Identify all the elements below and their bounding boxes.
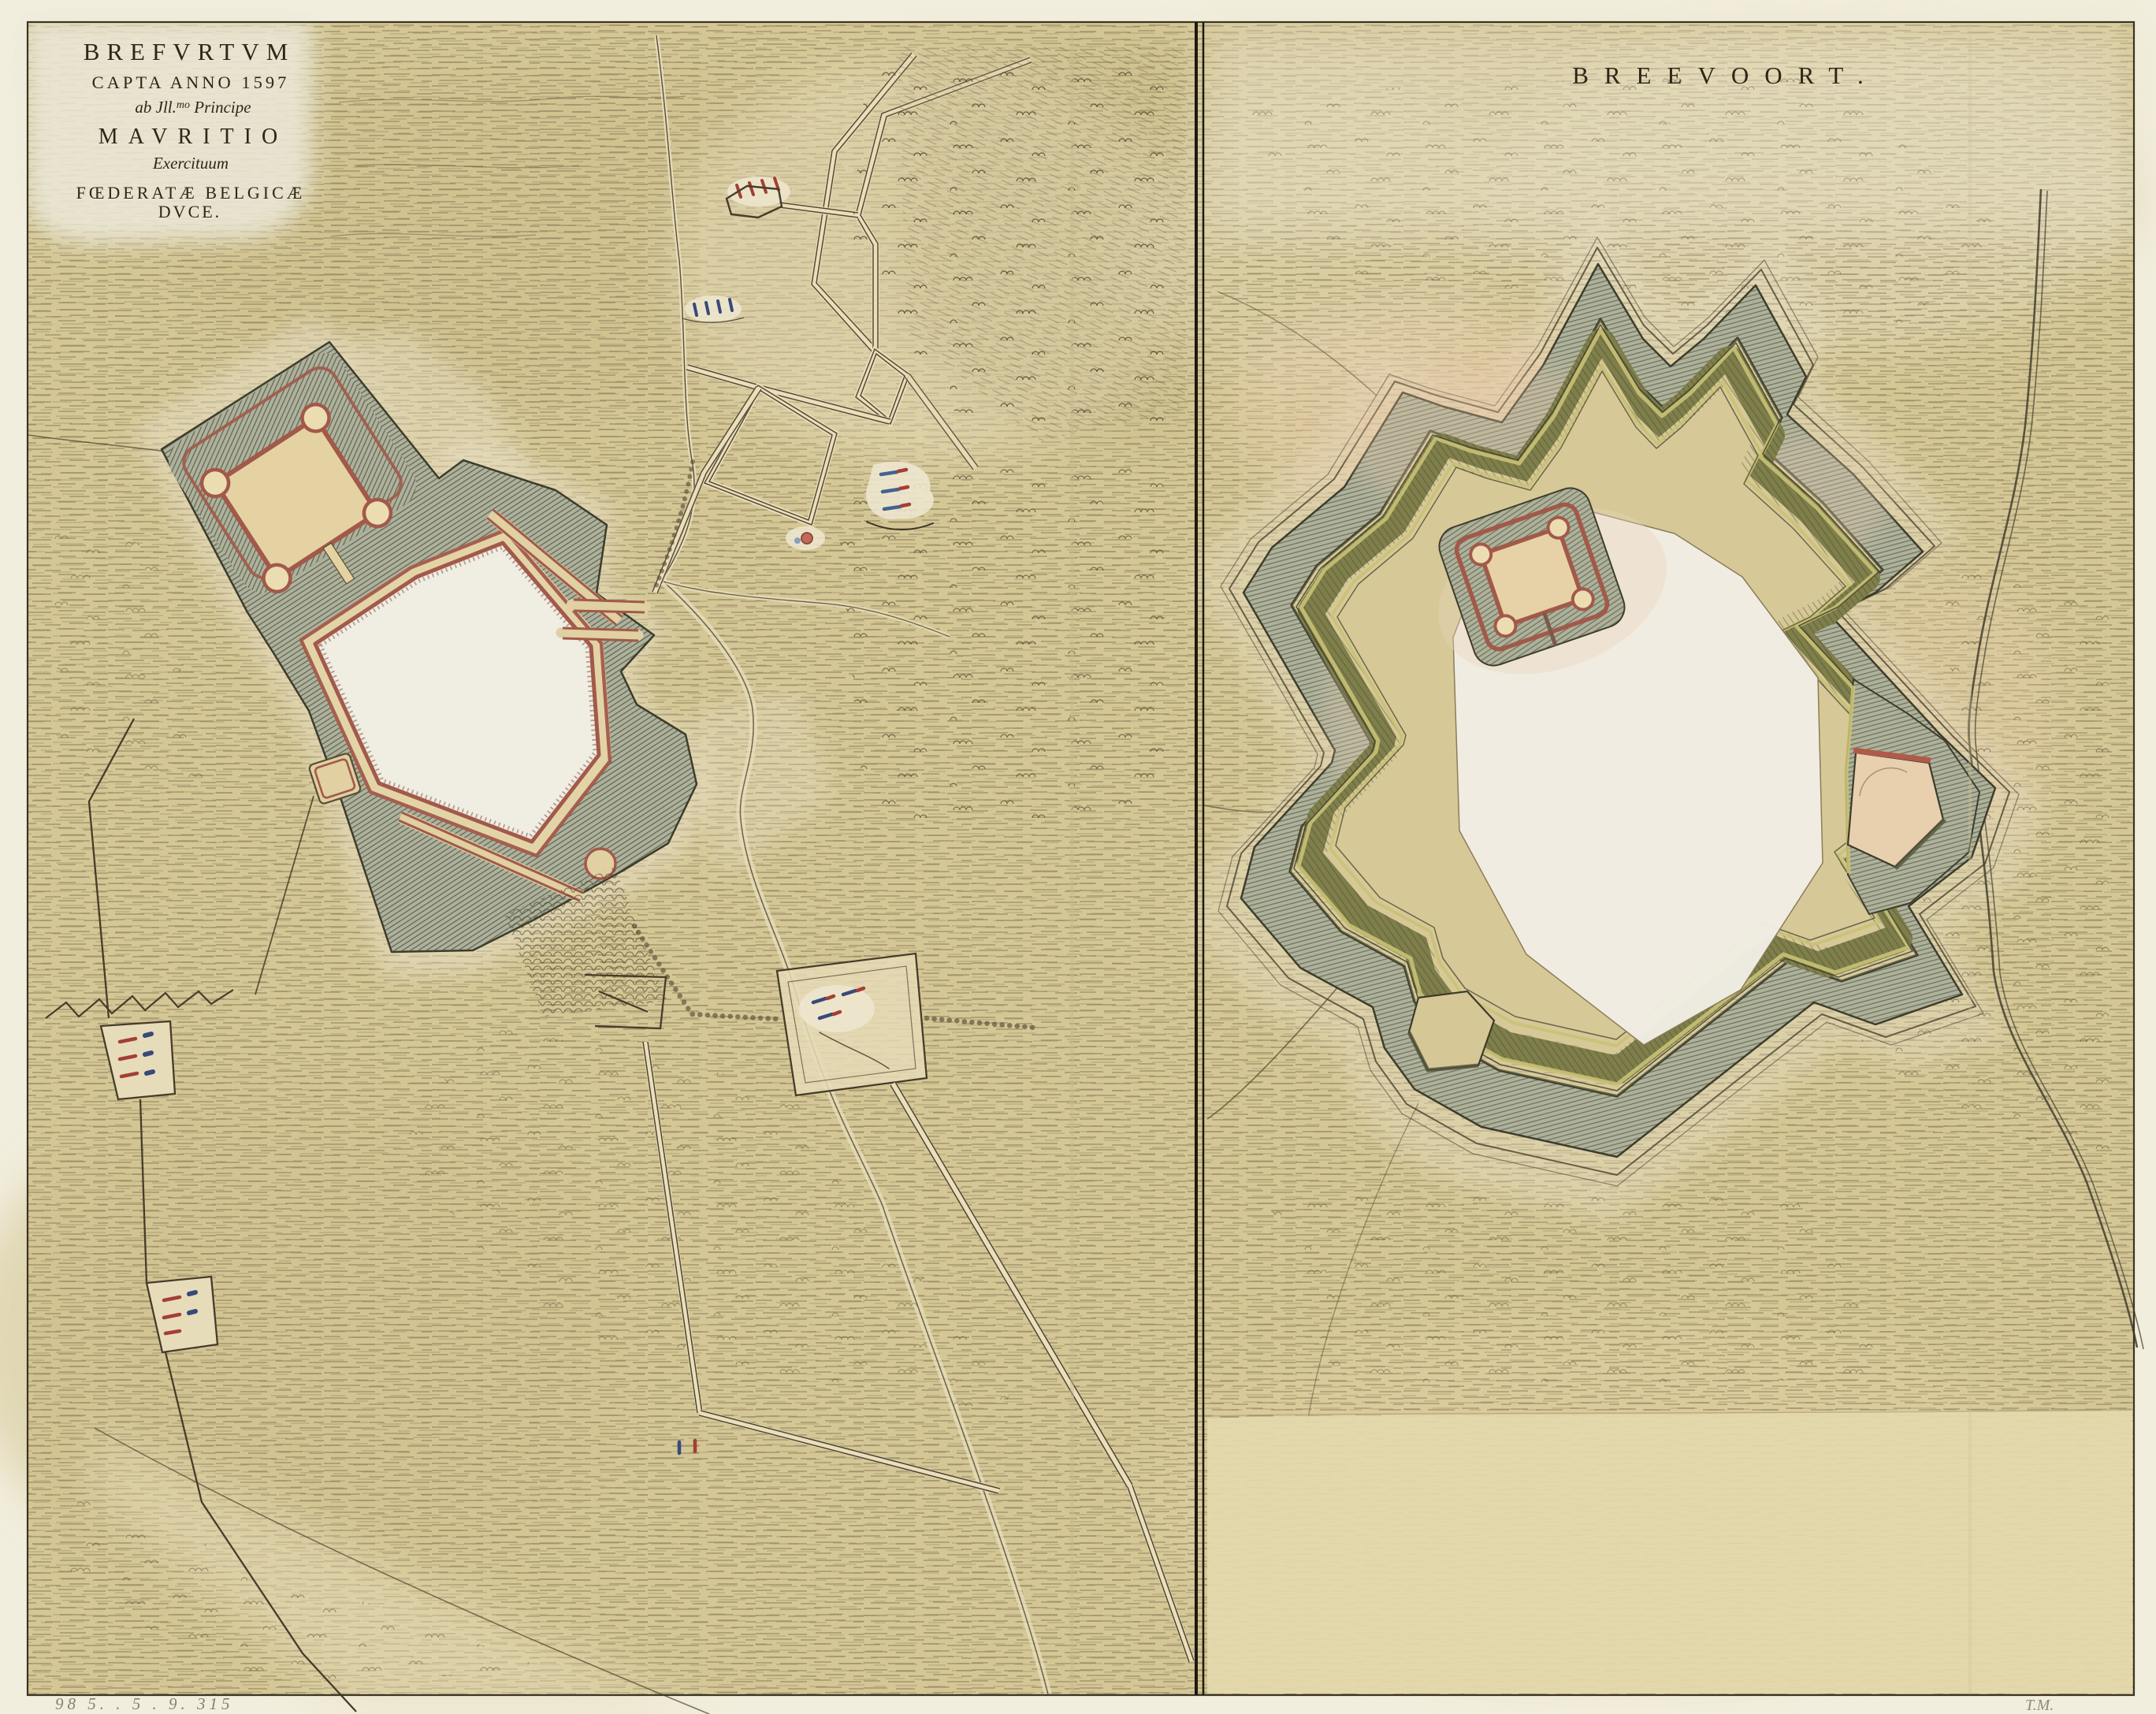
svg-text:ab Jll.mo Principe: ab Jll.mo Principe bbox=[135, 98, 251, 117]
svg-text:BREFVRTVM: BREFVRTVM bbox=[84, 38, 296, 65]
svg-text:CAPTA ANNO 1597: CAPTA ANNO 1597 bbox=[92, 73, 290, 92]
svg-text:DVCE.: DVCE. bbox=[158, 202, 221, 221]
svg-text:Exercituum: Exercituum bbox=[152, 154, 229, 173]
svg-text:98 5. . 5 . 9. 315: 98 5. . 5 . 9. 315 bbox=[55, 1694, 234, 1713]
svg-text:BREEVOORT.: BREEVOORT. bbox=[1572, 61, 1879, 89]
svg-text:T.M.: T.M. bbox=[2025, 1697, 2054, 1714]
svg-text:FŒDERATÆ BELGICÆ: FŒDERATÆ BELGICÆ bbox=[76, 183, 306, 203]
svg-text:MAVRITIO: MAVRITIO bbox=[99, 125, 288, 149]
